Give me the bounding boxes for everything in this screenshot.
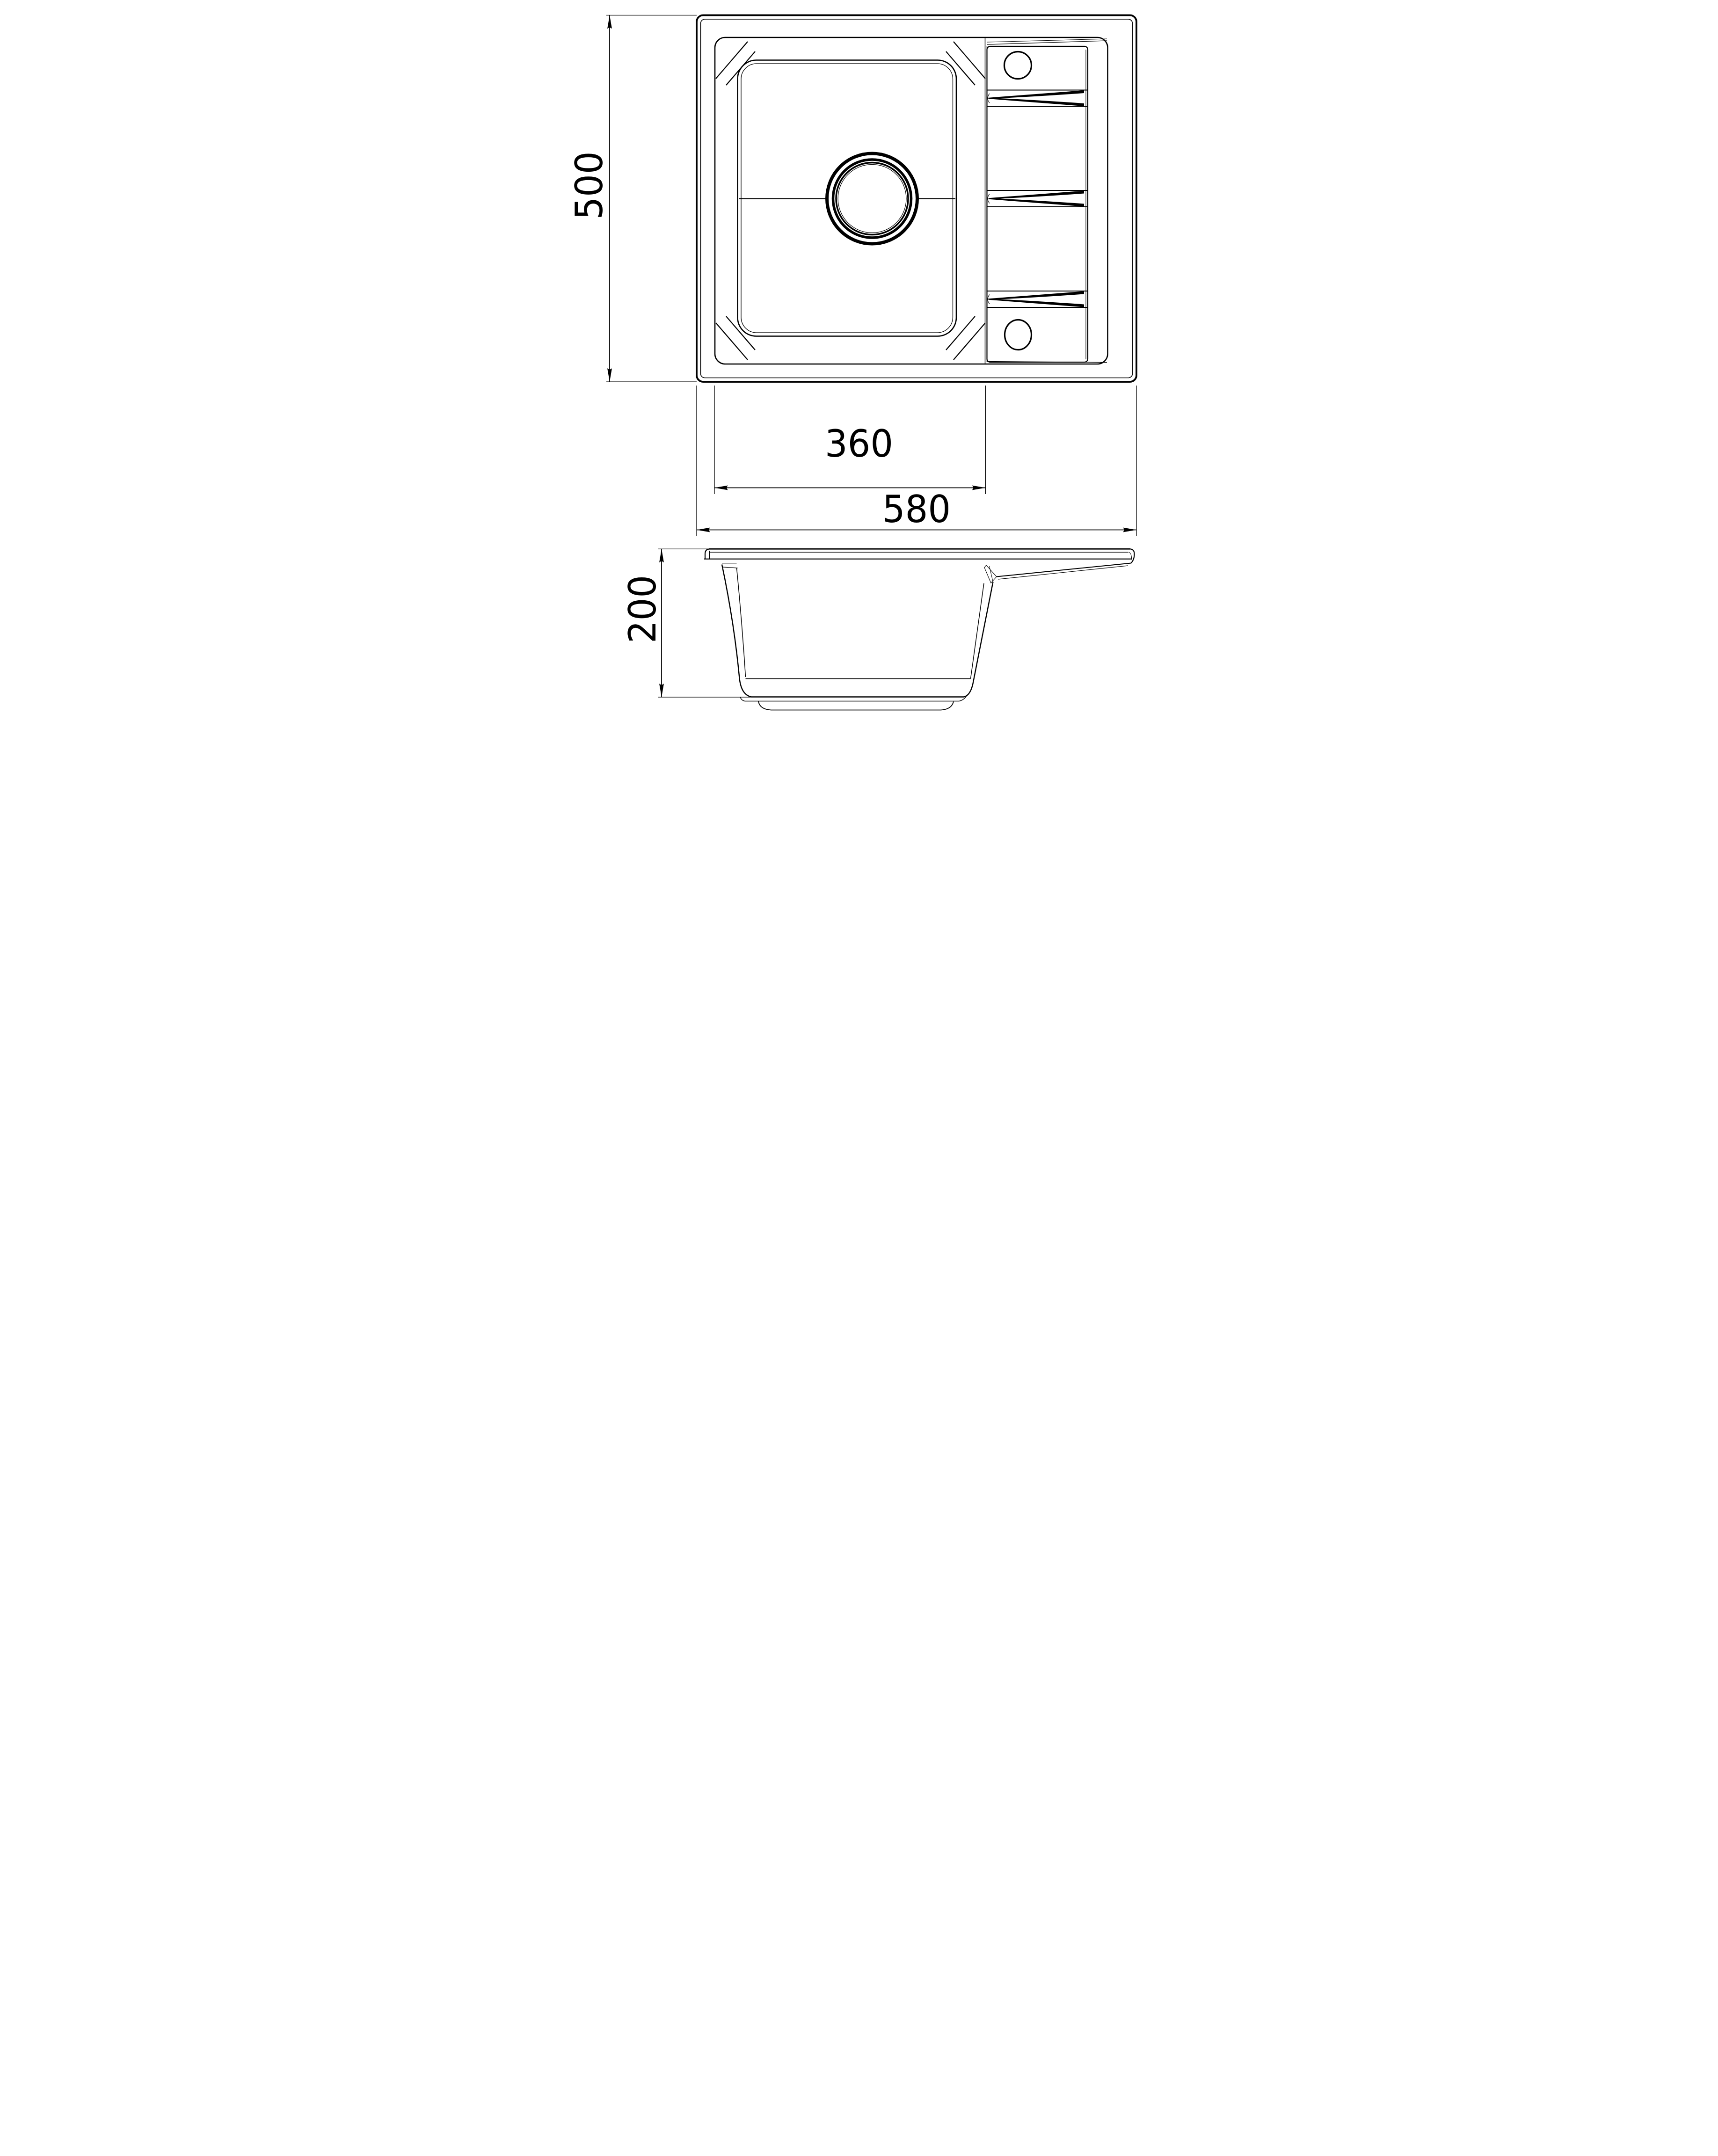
drainboard-ribs-group-3	[987, 291, 1087, 307]
drainboard-ribs-group-2	[987, 190, 1087, 207]
dimension-360: 360	[714, 386, 986, 494]
left-wall-shelf-2	[723, 567, 738, 568]
bowl-bottom-pad	[758, 701, 954, 710]
bowl-corner-chamfers	[716, 42, 985, 360]
drainboard	[987, 39, 1107, 363]
bowl-rim	[716, 37, 987, 364]
top-view	[697, 15, 1136, 382]
drain-outer-ring	[827, 153, 917, 244]
dimension-500: 500	[573, 15, 697, 382]
drainboard-top-band-line-2	[987, 39, 1107, 42]
drainboard-slope-outer	[997, 563, 1131, 577]
dimension-200: 200	[621, 549, 751, 697]
faucet-hole-bottom	[1005, 320, 1032, 350]
drawing-page: 500 360 580 200	[573, 0, 1145, 719]
drain-outlet	[827, 153, 917, 244]
side-view	[704, 549, 1135, 710]
arrowhead-500-down	[607, 368, 612, 382]
drainboard-slope-inner	[998, 566, 1128, 579]
arrowhead-360-left	[714, 486, 728, 490]
bowl-section-outline	[722, 565, 993, 697]
dim-label-200: 200	[621, 575, 664, 643]
arrowhead-360-right	[972, 486, 986, 490]
arrowhead-500-up	[607, 15, 612, 29]
dim-label-580: 580	[882, 488, 951, 531]
drainboard-ribs-group-1	[987, 90, 1087, 107]
slab-right-cap	[1130, 549, 1135, 563]
dimension-580: 580	[697, 386, 1136, 536]
dim-label-360: 360	[825, 422, 893, 466]
arrowhead-200-up	[659, 549, 664, 562]
drain-inner-ring	[836, 163, 908, 235]
wall-junction-facet-line	[990, 566, 993, 581]
drain-mid-ring	[833, 160, 911, 238]
faucet-hole-top	[1005, 52, 1032, 79]
wall-junction-facet	[984, 565, 997, 583]
drain-innermost-ring	[838, 165, 906, 233]
arrowhead-580-left	[697, 528, 710, 532]
sink-technical-drawing: 500 360 580 200	[573, 0, 1145, 719]
slab-left-lip	[705, 549, 709, 560]
drainboard-top-band-line-1	[987, 41, 1107, 44]
dim-label-500: 500	[573, 152, 611, 220]
arrowhead-200-down	[659, 684, 664, 697]
arrowhead-580-right	[1123, 528, 1136, 532]
